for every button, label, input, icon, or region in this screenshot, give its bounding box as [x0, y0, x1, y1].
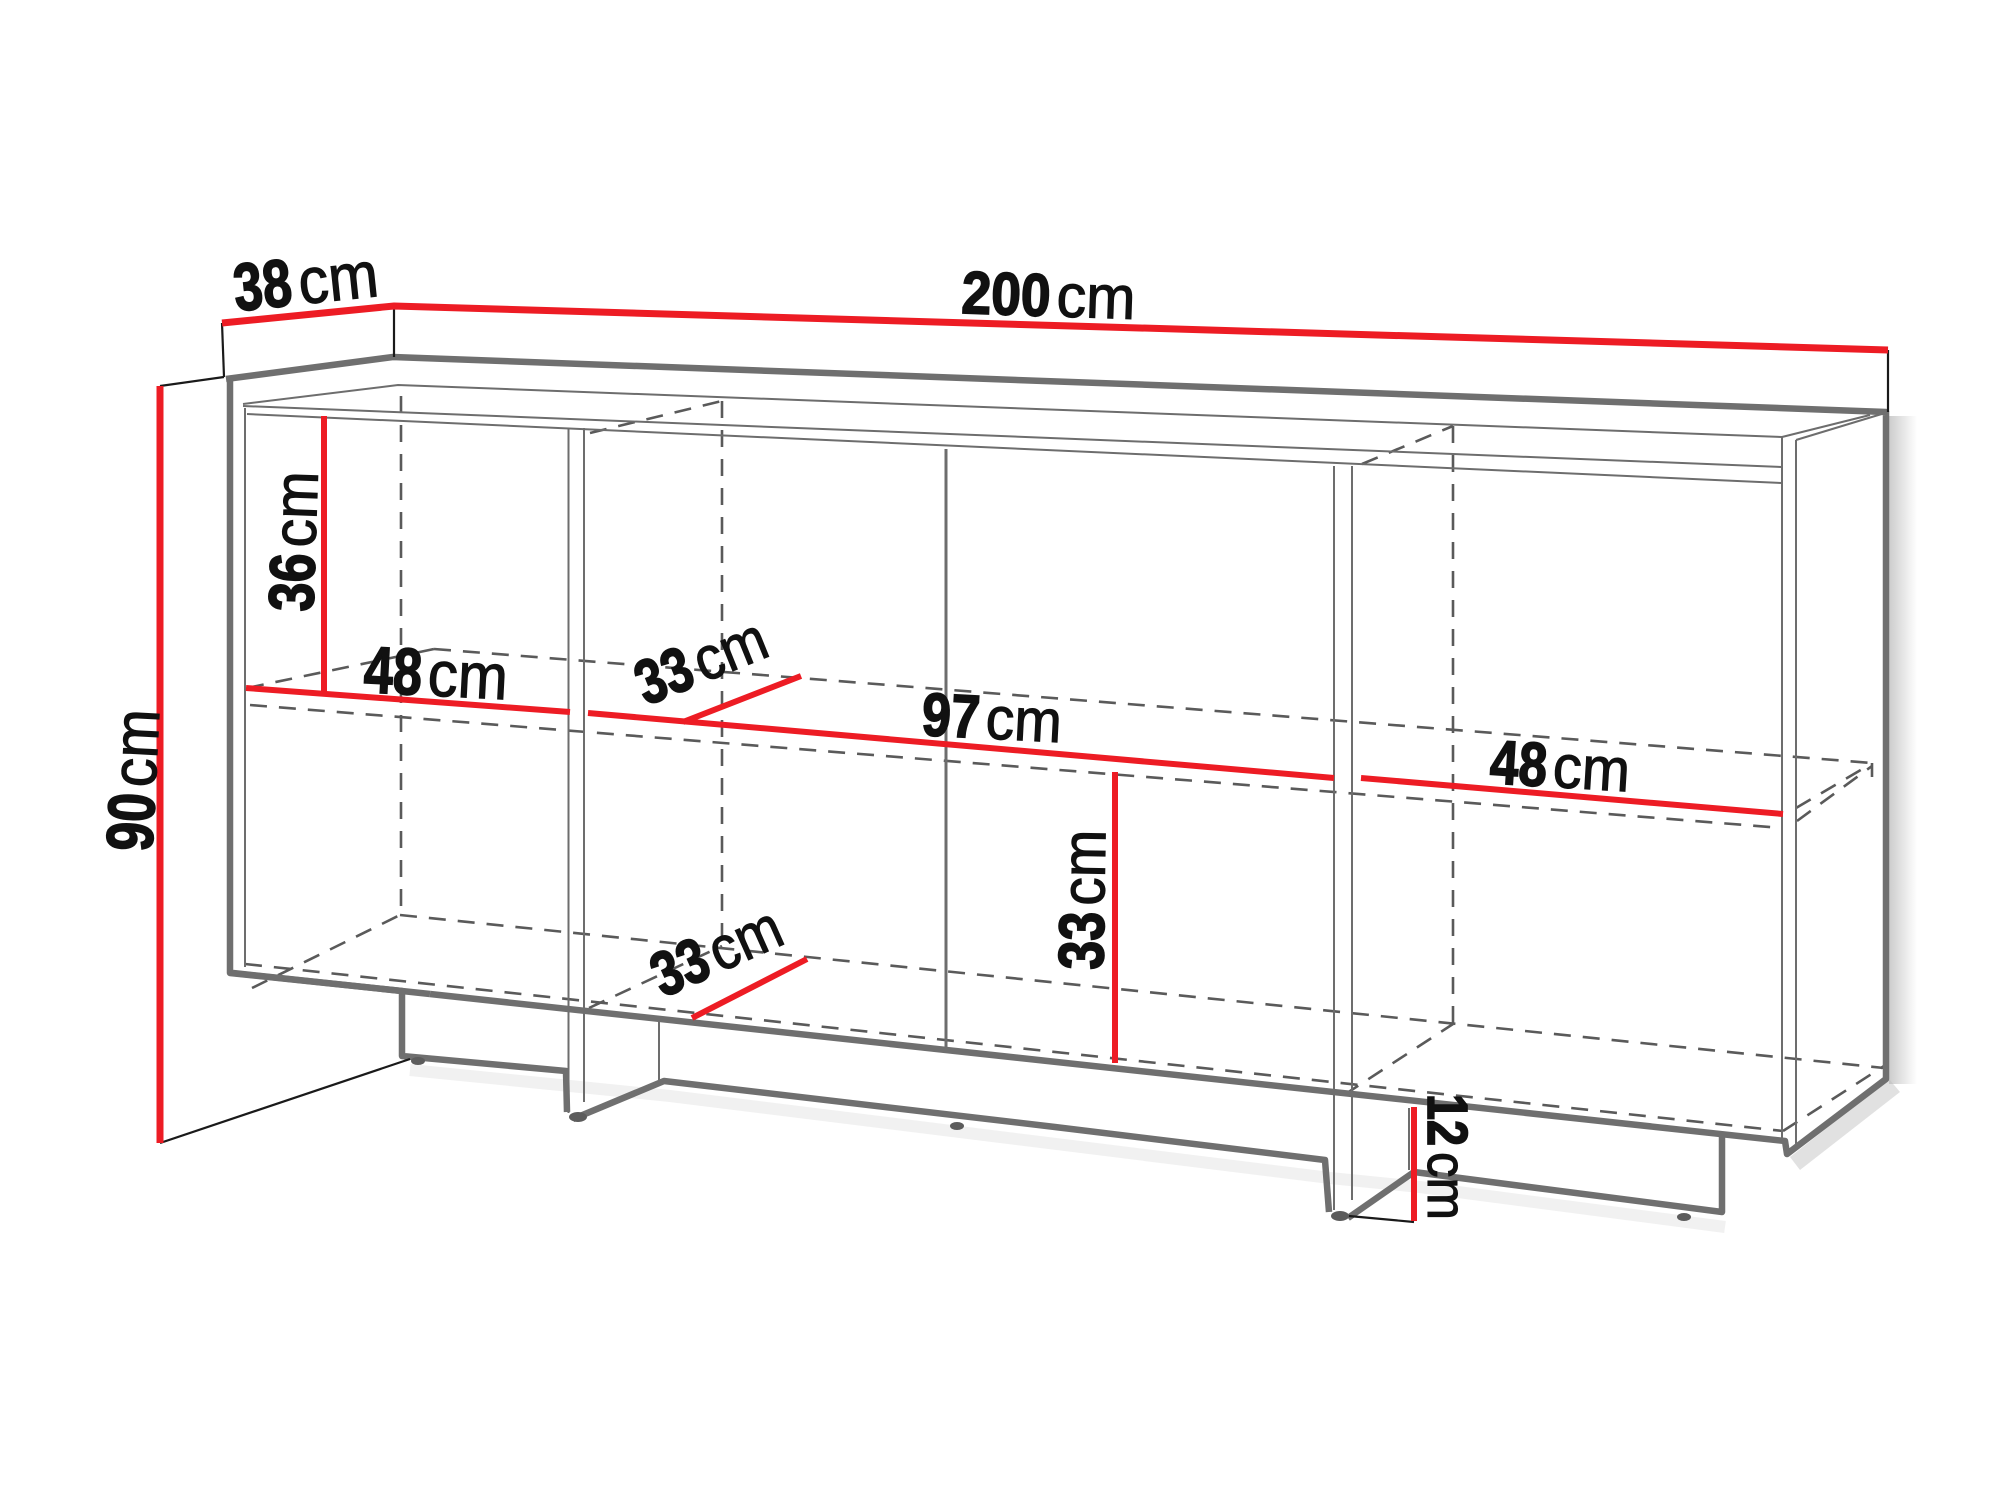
- svg-text:cm: cm: [97, 707, 173, 789]
- svg-text:cm: cm: [1055, 261, 1136, 332]
- svg-text:200: 200: [961, 259, 1052, 329]
- svg-text:36: 36: [255, 552, 329, 612]
- svg-text:90: 90: [92, 791, 169, 853]
- svg-text:cm: cm: [1049, 829, 1119, 906]
- svg-text:33: 33: [1045, 911, 1118, 970]
- svg-text:cm: cm: [294, 237, 381, 318]
- svg-text:38: 38: [230, 245, 296, 326]
- svg-text:97: 97: [920, 680, 981, 751]
- svg-text:cm: cm: [1416, 1152, 1478, 1220]
- svg-text:48: 48: [1488, 728, 1549, 800]
- svg-text:cm: cm: [1551, 732, 1632, 805]
- svg-text:12: 12: [1415, 1094, 1479, 1146]
- svg-text:cm: cm: [260, 470, 332, 548]
- svg-text:cm: cm: [426, 637, 510, 713]
- svg-text:cm: cm: [984, 684, 1063, 755]
- svg-text:48: 48: [362, 632, 424, 709]
